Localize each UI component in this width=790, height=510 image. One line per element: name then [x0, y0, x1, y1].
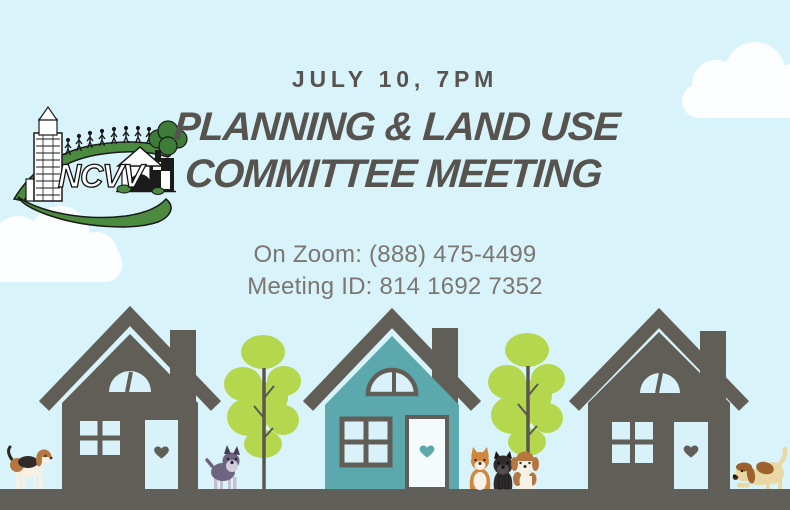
ground: [0, 489, 790, 510]
shiba-dog-icon: [470, 447, 491, 490]
zoom-phone-line: On Zoom: (888) 475-4499: [0, 239, 790, 271]
gray-house-right: [574, 318, 744, 489]
schnauzer-dog-icon: [207, 445, 240, 489]
beagle-puppy-dog-icon: [511, 452, 539, 489]
event-title-line1: PLANNING & LAND USE: [0, 104, 790, 151]
event-datetime: JULY 10, 7PM: [0, 66, 790, 93]
playing-hound-dog-icon: [733, 449, 785, 489]
gray-house-left: [44, 316, 216, 489]
meeting-details: On Zoom: (888) 475-4499 Meeting ID: 814 …: [0, 239, 790, 303]
event-flyer: NCVV JULY 10, 7PM PLANNING & LAND USE CO…: [0, 0, 790, 510]
event-title-line2: COMMITTEE MEETING: [0, 151, 790, 198]
meeting-id-line: Meeting ID: 814 1692 7352: [0, 271, 790, 303]
beagle-standing-dog-icon: [9, 447, 53, 489]
teal-house-center: [308, 318, 476, 489]
event-title: PLANNING & LAND USE COMMITTEE MEETING: [0, 104, 790, 198]
black-pug-dog-icon: [494, 451, 513, 489]
